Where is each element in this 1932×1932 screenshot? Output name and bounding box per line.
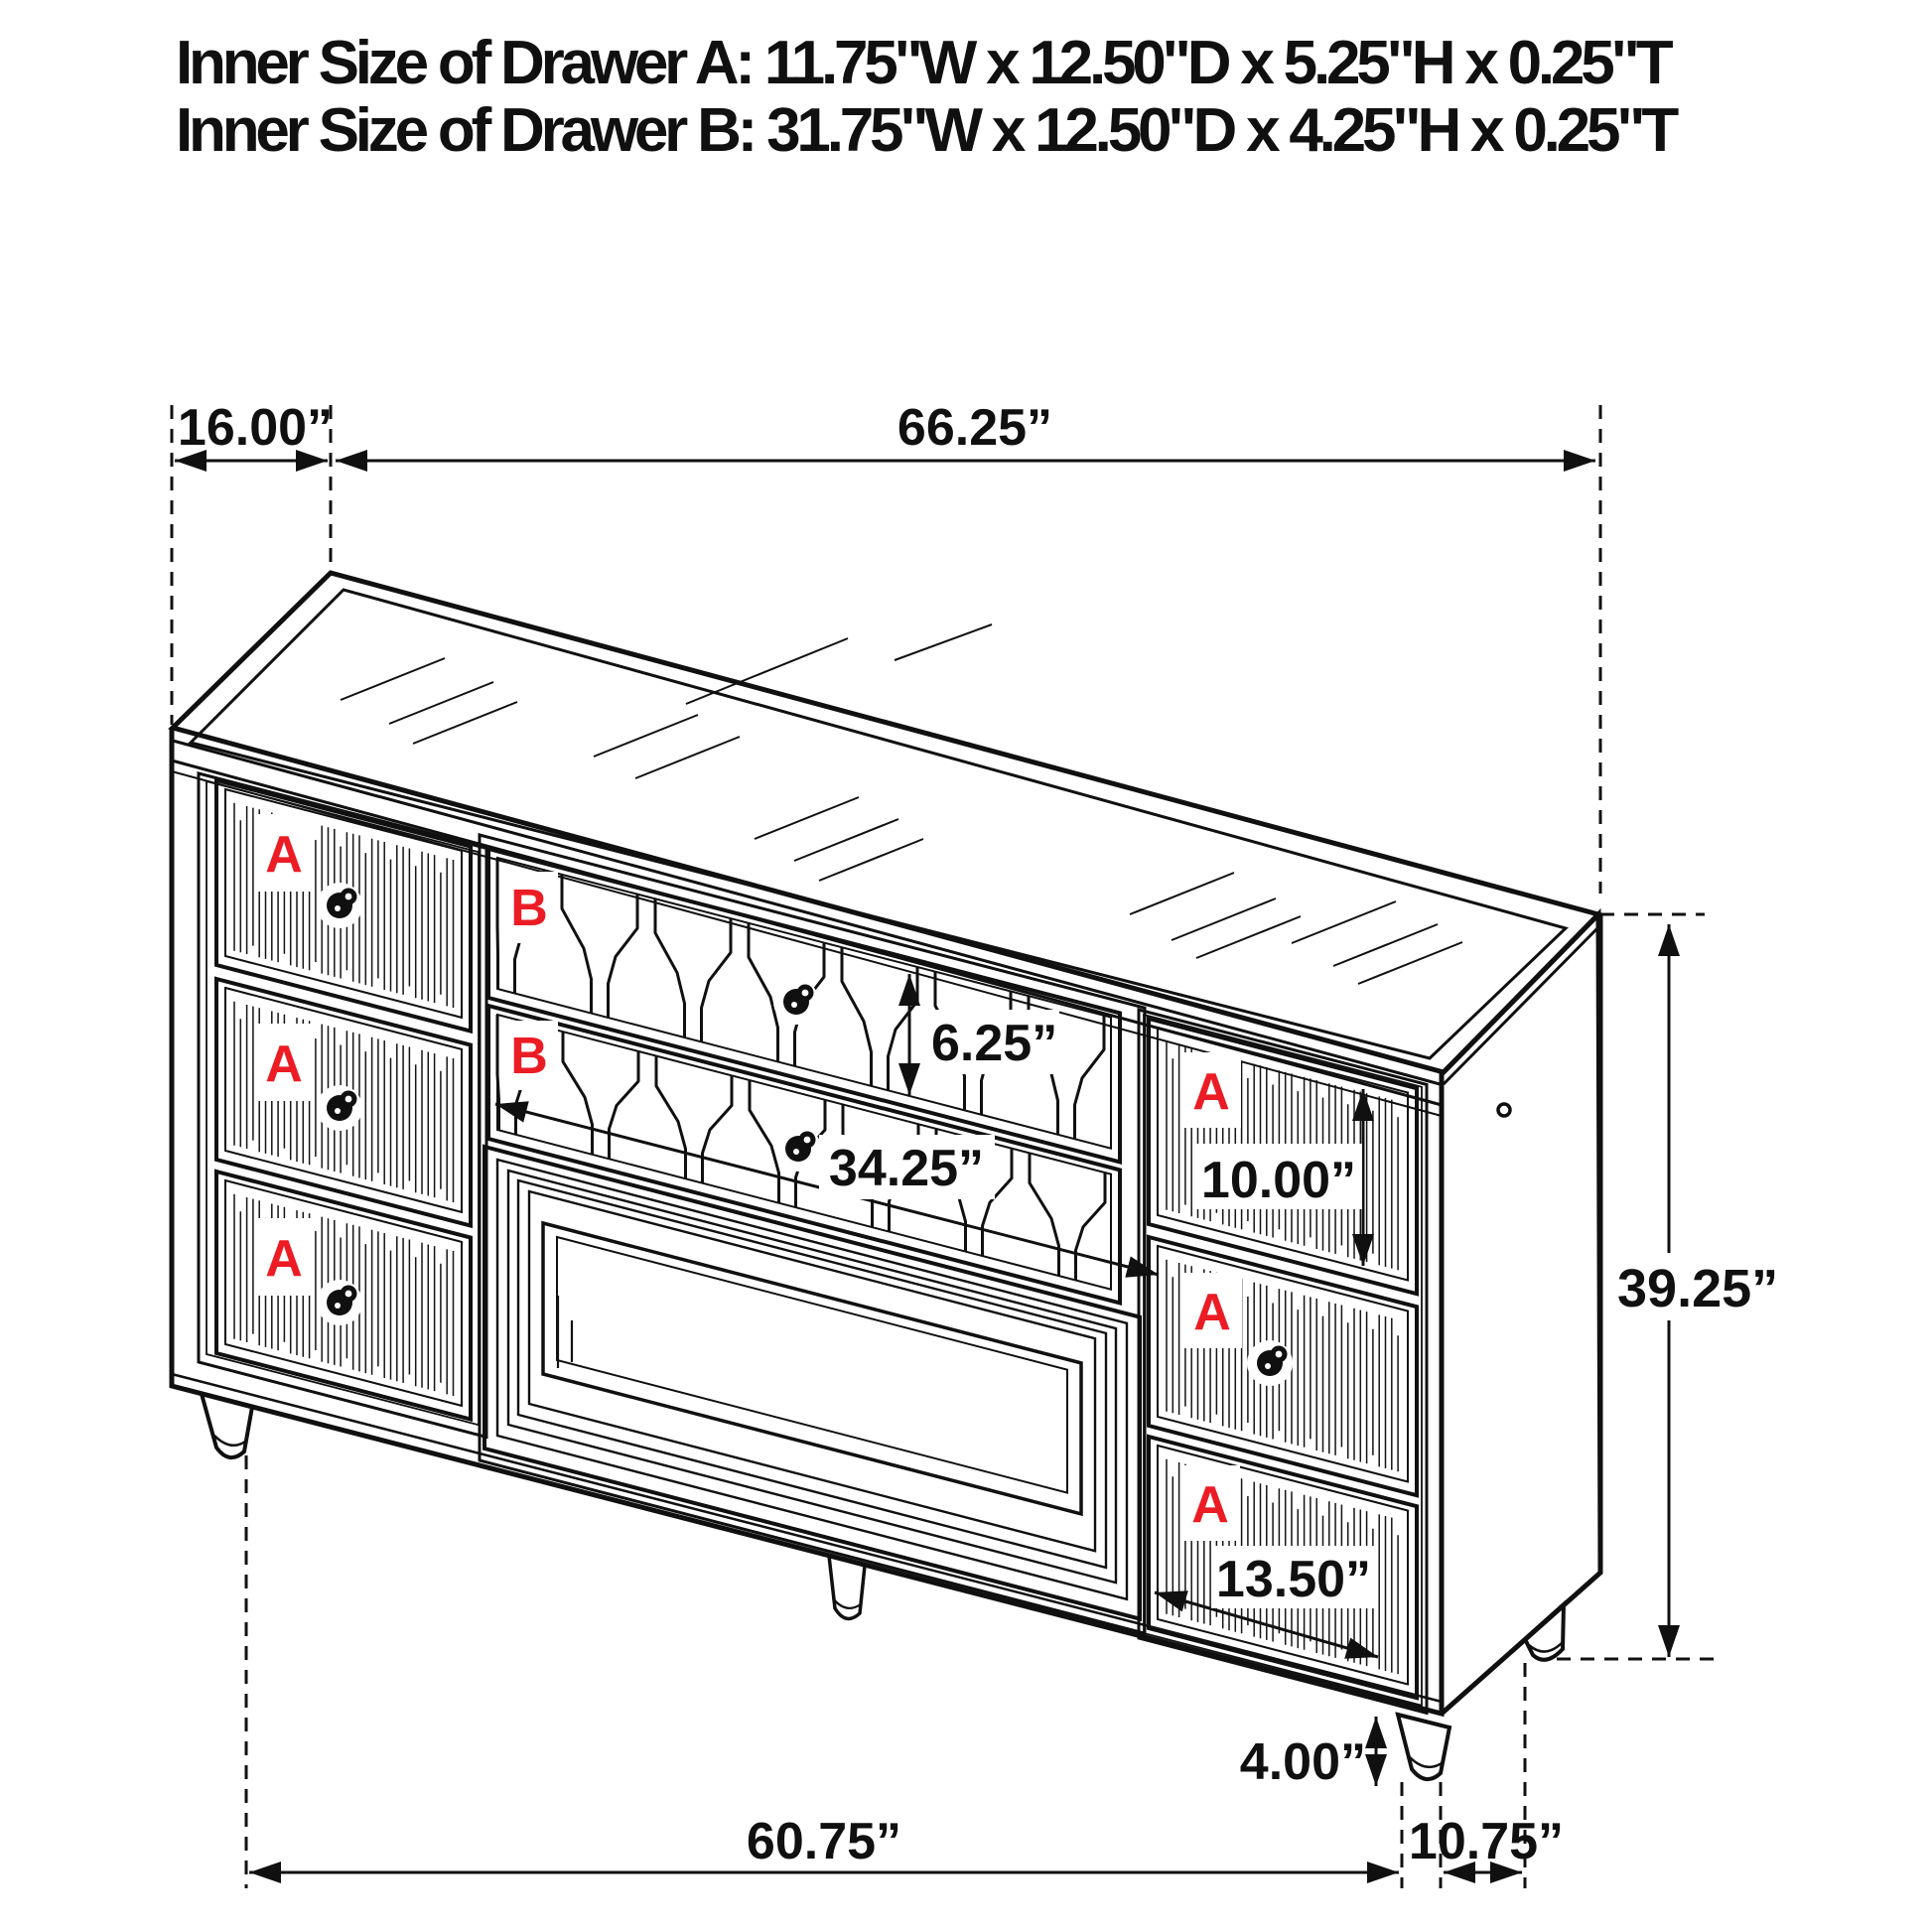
svg-text:16.00”: 16.00” [178,399,333,457]
svg-text:66.25”: 66.25” [897,399,1052,457]
svg-text:A: A [1193,1284,1231,1341]
svg-text:A: A [1192,1063,1230,1121]
svg-text:Inner Size of Drawer B: 31.75": Inner Size of Drawer B: 31.75"W x 12.50"… [176,96,1679,165]
svg-text:A: A [265,1230,303,1288]
svg-text:B: B [510,1028,548,1085]
svg-text:13.50”: 13.50” [1216,1551,1371,1608]
svg-text:10.75”: 10.75” [1409,1813,1564,1870]
svg-text:34.25”: 34.25” [829,1140,984,1197]
svg-text:10.00”: 10.00” [1201,1152,1356,1209]
svg-text:A: A [1191,1476,1229,1534]
svg-text:B: B [510,880,548,937]
svg-text:A: A [265,826,303,884]
svg-text:A: A [265,1035,303,1093]
svg-text:39.25”: 39.25” [1617,1259,1778,1318]
svg-text:6.25”: 6.25” [931,1015,1057,1072]
svg-text:Inner Size of Drawer A: 11.75": Inner Size of Drawer A: 11.75"W x 12.50"… [176,29,1674,97]
svg-text:4.00”: 4.00” [1240,1733,1366,1791]
svg-text:60.75”: 60.75” [747,1813,901,1870]
